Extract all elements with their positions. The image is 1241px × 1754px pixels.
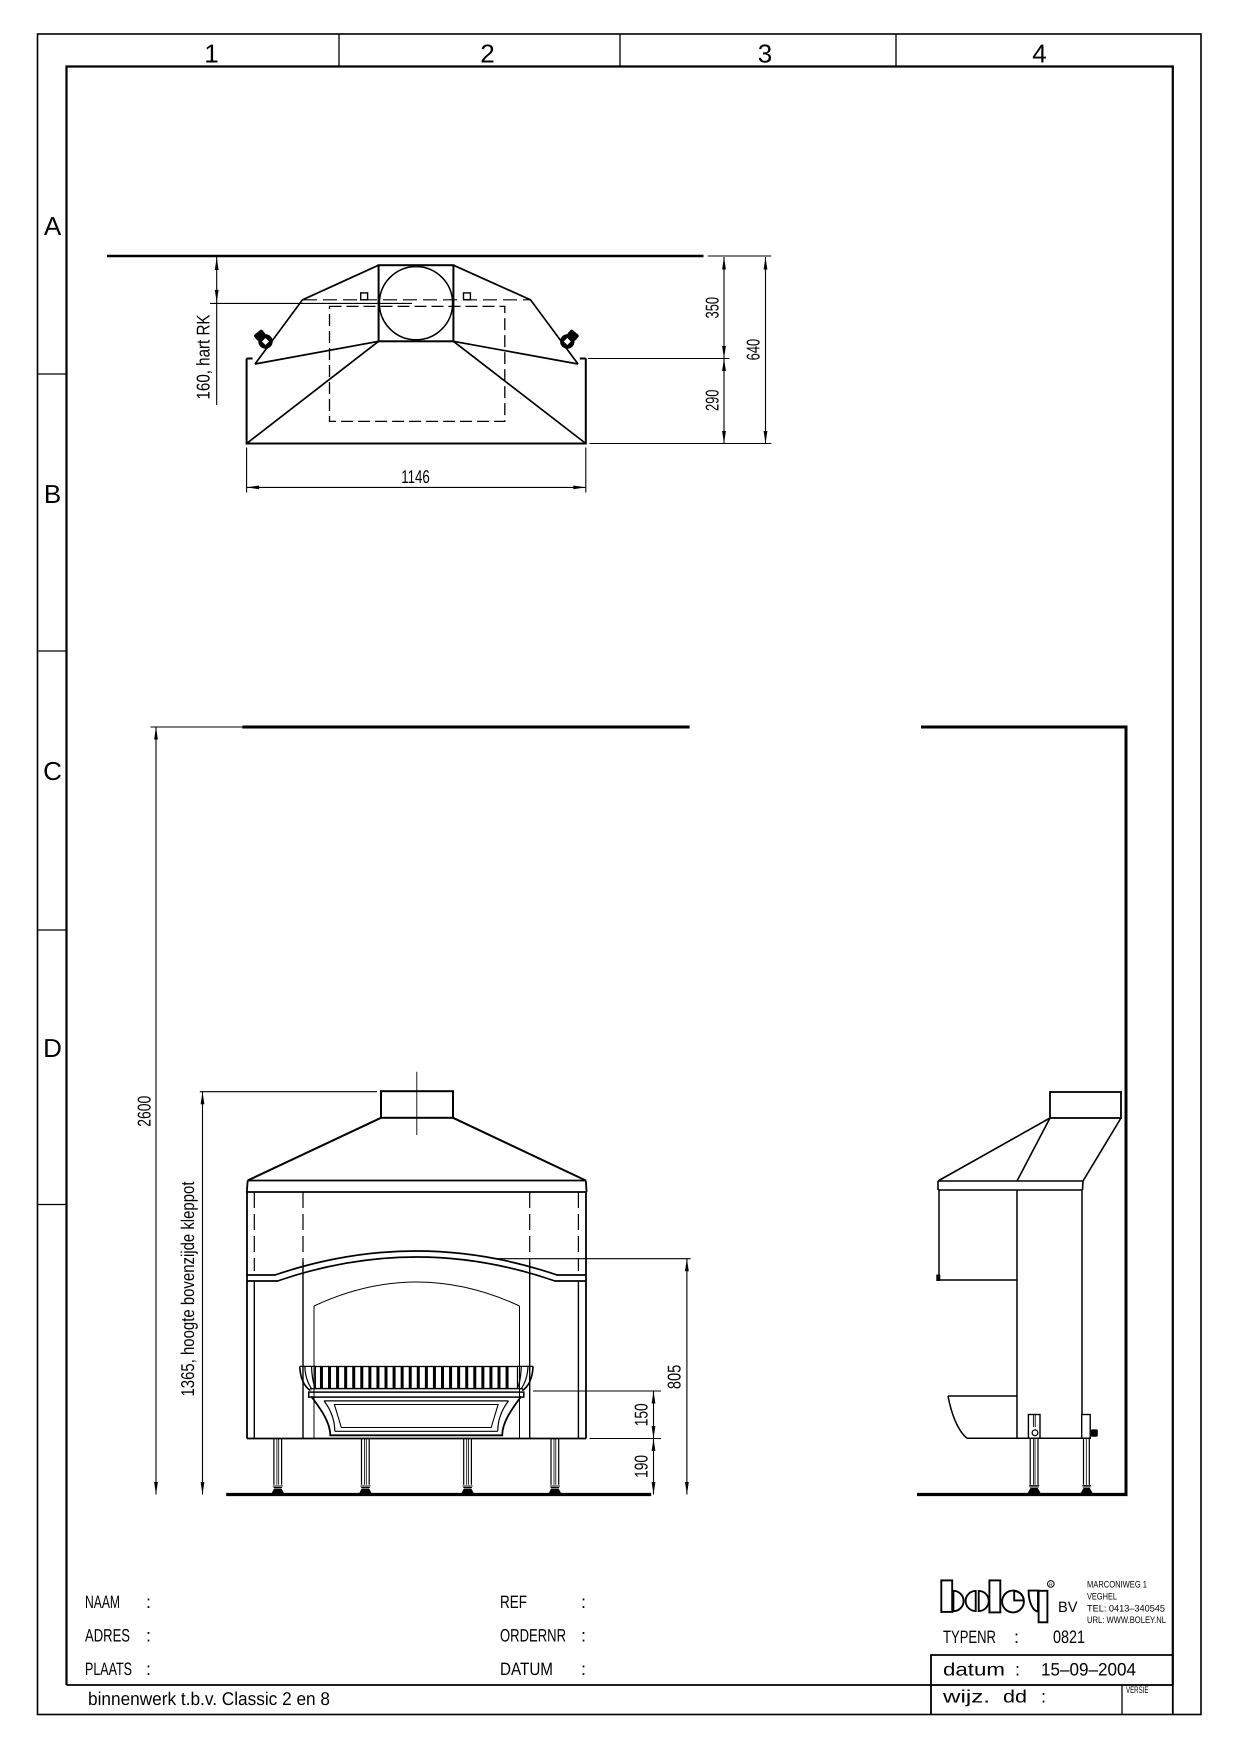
svg-text::: :: [146, 1592, 151, 1612]
svg-text:1: 1: [204, 39, 218, 69]
svg-text:wijz.: wijz.: [942, 1687, 990, 1707]
svg-text:3: 3: [758, 39, 772, 69]
svg-text:BV: BV: [1058, 1599, 1078, 1616]
svg-text:1146: 1146: [401, 466, 430, 487]
svg-text:805: 805: [664, 1365, 685, 1390]
svg-text:datum: datum: [943, 1660, 1005, 1680]
svg-text:PLAATS: PLAATS: [85, 1659, 132, 1679]
svg-text:TEL: 0413–340545: TEL: 0413–340545: [1087, 1604, 1165, 1615]
svg-text:290: 290: [702, 390, 723, 412]
svg-text:ORDERNR: ORDERNR: [500, 1626, 566, 1646]
svg-text:640: 640: [743, 339, 764, 361]
svg-text:B: B: [44, 479, 61, 509]
svg-text:2: 2: [480, 39, 494, 69]
svg-text:D: D: [43, 1033, 62, 1063]
svg-text:binnenwerk t.b.v. Classic 2: binnenwerk t.b.v. Classic 2 en 8: [88, 1688, 330, 1709]
svg-text::: :: [146, 1626, 151, 1646]
svg-text:0821: 0821: [1053, 1627, 1085, 1647]
svg-text:1365, hoogte bovenzijde kleppo: 1365, hoogte bovenzijde kleppot: [177, 1182, 198, 1397]
svg-text:NAAM: NAAM: [85, 1592, 120, 1612]
svg-text:C: C: [43, 756, 62, 786]
svg-text:190: 190: [631, 1455, 652, 1478]
svg-text:2600: 2600: [134, 1096, 155, 1127]
svg-text:TYPENR: TYPENR: [943, 1627, 996, 1647]
svg-text:DATUM: DATUM: [500, 1659, 553, 1679]
svg-text:350: 350: [702, 297, 723, 319]
svg-text:dd: dd: [1003, 1687, 1027, 1707]
svg-text:A: A: [44, 211, 62, 241]
svg-text:160, hart RK: 160, hart RK: [193, 314, 214, 400]
svg-text::: :: [1041, 1687, 1046, 1707]
svg-text:R: R: [1049, 1582, 1053, 1588]
svg-text:4: 4: [1032, 39, 1046, 69]
svg-text::: :: [1014, 1627, 1019, 1647]
svg-text:150: 150: [631, 1403, 652, 1426]
svg-text::: :: [581, 1659, 586, 1679]
svg-text:15–09–2004: 15–09–2004: [1041, 1660, 1136, 1680]
svg-text:VERSIE: VERSIE: [1126, 1685, 1149, 1696]
svg-text:URL: WWW.BOLEY.NL: URL: WWW.BOLEY.NL: [1087, 1615, 1166, 1626]
svg-text:REF: REF: [500, 1592, 527, 1612]
svg-text::: :: [581, 1626, 586, 1646]
svg-text::: :: [581, 1592, 586, 1612]
svg-text:VEGHEL: VEGHEL: [1087, 1592, 1117, 1603]
svg-text:MARCONIWEG 1: MARCONIWEG 1: [1087, 1580, 1147, 1591]
svg-text:ADRES: ADRES: [85, 1626, 130, 1646]
svg-text::: :: [1015, 1660, 1020, 1680]
svg-text::: :: [146, 1659, 151, 1679]
